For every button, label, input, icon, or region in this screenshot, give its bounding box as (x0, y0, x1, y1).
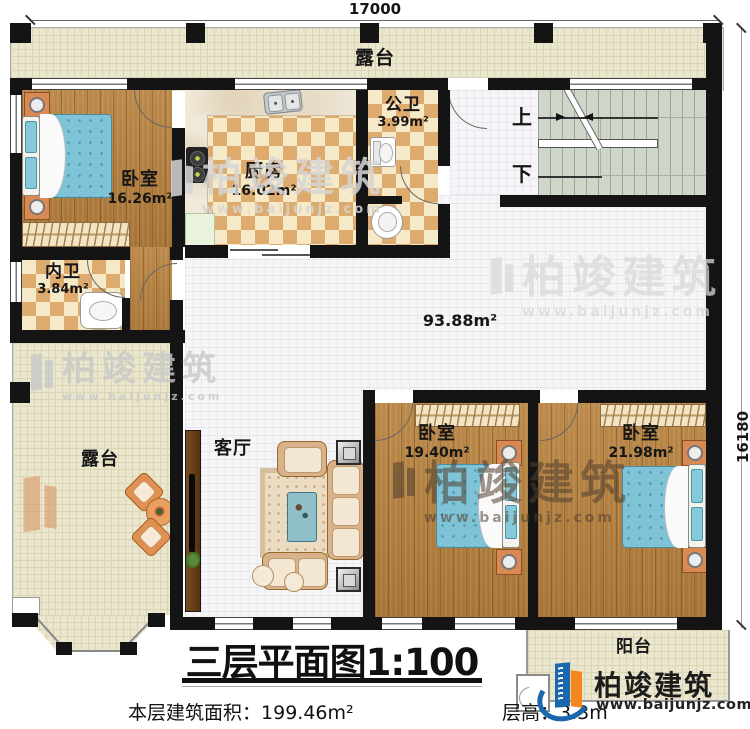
lamp-icon (29, 199, 45, 215)
window-bedroom1-left (10, 95, 22, 153)
balcony-sliding-door (575, 617, 677, 630)
stair-arrow (584, 113, 593, 121)
lamp-icon (687, 552, 703, 568)
room-name: 厨房 (220, 162, 308, 183)
wall-corridor-right (170, 247, 183, 260)
room-name: 卧室 (395, 424, 479, 445)
room-name: 露台 (60, 450, 140, 471)
kitchen-sliding-door-line (262, 254, 310, 256)
label-terrace-top: 露台 (340, 48, 410, 70)
column (534, 23, 553, 43)
room-area: 16.26m² (95, 191, 185, 207)
wall-publicbath-right (438, 78, 450, 166)
label-terrace-left: 露台 (60, 450, 140, 471)
side-table (336, 440, 361, 465)
kitchen-board (185, 213, 215, 247)
ottoman (284, 572, 304, 592)
floor-area-value: 199.46m² (261, 702, 354, 724)
room-name: 卧室 (592, 424, 690, 445)
pillow (25, 157, 37, 189)
wall-stairs-bottom (500, 195, 722, 207)
column (10, 382, 30, 403)
label-bedroom2: 卧室 19.40m² (395, 424, 479, 461)
wash-basin (371, 205, 403, 239)
lamp-icon (29, 97, 45, 113)
column (56, 642, 72, 655)
column (186, 23, 205, 43)
column (10, 23, 31, 43)
window-innerbath-left (10, 262, 22, 302)
room-area: 19.40m² (395, 445, 479, 461)
lamp-icon (501, 445, 517, 461)
stair-up-label: 上 (512, 101, 532, 130)
wall-terrace-living (170, 343, 183, 617)
brand-logo-icon (537, 663, 589, 713)
label-public-bath: 公卫 3.99m² (369, 96, 437, 130)
column (148, 613, 165, 627)
floor-area-label: 本层建筑面积： (128, 702, 261, 724)
pillow (691, 507, 703, 541)
room-name: 露台 (340, 48, 410, 70)
wall-bath-stub (122, 298, 130, 330)
room-name: 内卫 (32, 263, 94, 283)
wall-bedroom2-left (363, 390, 375, 630)
wall-publicbath-divider (368, 196, 402, 204)
room-name: 公卫 (369, 96, 437, 116)
cushion (332, 528, 360, 557)
floor-area-line: 本层建筑面积：199.46m² (128, 698, 354, 725)
label-inner-bath: 内卫 3.84m² (32, 263, 94, 297)
logo-building-orange (571, 670, 582, 708)
pillow (505, 505, 517, 539)
tv (189, 474, 195, 552)
nightstand (496, 549, 522, 575)
brand-url: www.baijunjz.com (596, 697, 750, 713)
label-hall-area: 93.88m² (405, 312, 515, 330)
kitchen-door-opening (228, 245, 310, 258)
window-stairs-top (570, 78, 692, 90)
sofa (327, 460, 364, 560)
dimension-right: 16180 (734, 394, 750, 480)
pillow (25, 121, 37, 153)
room-name: 卧室 (95, 170, 185, 191)
sink-basin (284, 92, 301, 110)
title-underline (182, 678, 482, 683)
window-bedroom2-bottom (455, 617, 515, 630)
room-name: 阳台 (603, 638, 665, 658)
window-living-bottom (293, 617, 331, 630)
column (12, 613, 38, 627)
room-area: 16.02m² (220, 183, 308, 199)
bed-sheet (664, 466, 688, 548)
cushion (332, 497, 360, 526)
bedroom2-door-opening (375, 390, 413, 403)
floor-plan: 17000 16180 上 下 (0, 0, 750, 729)
lamp-icon (501, 554, 517, 570)
label-balcony: 阳台 (603, 638, 665, 658)
pillow (505, 467, 517, 501)
pillow (691, 469, 703, 503)
room-area: 3.84m² (32, 283, 94, 298)
wall-kitchen-bottom (185, 245, 450, 258)
sink-basin (267, 94, 284, 112)
nightstand (682, 547, 708, 573)
column (360, 23, 379, 43)
dimension-right-line (741, 28, 742, 628)
wall-bath-bottom (10, 330, 185, 343)
stair-down-label: 下 (512, 158, 532, 187)
armchair (277, 441, 327, 477)
dimension-top: 17000 (330, 0, 420, 18)
label-bedroom3: 卧室 21.98m² (592, 424, 690, 461)
title-underline-thin (182, 686, 482, 687)
kitchen-sliding-door-line (230, 249, 278, 251)
stair-arrow (556, 113, 565, 121)
label-living: 客厅 (200, 439, 266, 460)
window-bedroom2-bottom (382, 617, 422, 630)
wall-bedroom1-bath (10, 247, 130, 260)
plant (186, 552, 200, 568)
side-table (336, 567, 361, 592)
toilet (370, 137, 396, 167)
wall-kitchen-right (356, 78, 368, 258)
window-kitchen-top (235, 78, 367, 90)
wall-right (706, 43, 722, 630)
kitchen-sink (263, 89, 303, 115)
coffee-table (287, 492, 317, 542)
column (703, 23, 722, 43)
wardrobe (22, 222, 130, 247)
room-area: 3.99m² (369, 116, 437, 131)
bathroom-sink (80, 292, 124, 329)
window-bedroom1-top (32, 78, 127, 90)
stove-burner (190, 167, 205, 182)
wall-bedroom2-bedroom3 (528, 390, 538, 630)
label-kitchen: 厨房 16.02m² (220, 162, 308, 199)
room-name: 客厅 (200, 439, 266, 460)
logo-building-blue (555, 662, 570, 708)
dimension-top-line (30, 20, 720, 21)
cushion (284, 447, 322, 473)
column (120, 642, 137, 655)
stair-down-line (538, 176, 602, 178)
bed-sheet (478, 464, 502, 548)
stove-burner (190, 151, 205, 166)
room-area: 21.98m² (592, 445, 690, 461)
entry-door-opening (448, 78, 488, 90)
stove (186, 147, 208, 183)
ottoman (252, 565, 274, 587)
label-bedroom1: 卧室 16.26m² (95, 170, 185, 207)
bedroom3-door-opening (540, 390, 578, 403)
window-living-bottom (215, 617, 253, 630)
room-area: 93.88m² (405, 312, 515, 330)
cushion (332, 466, 360, 495)
